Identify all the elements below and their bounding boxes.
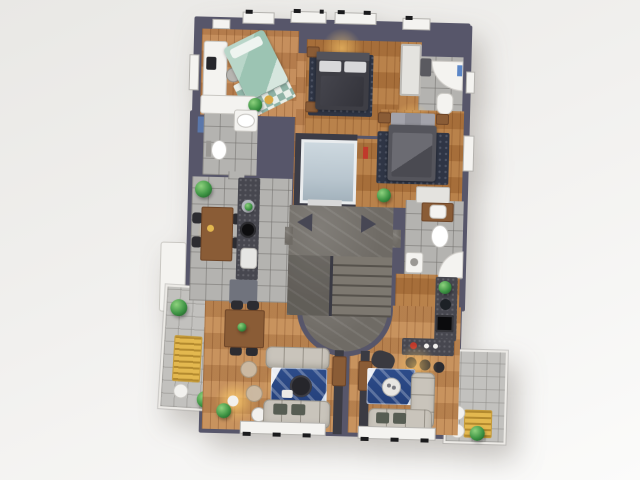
staircase-steps <box>331 256 393 318</box>
plant <box>244 203 252 211</box>
sofa-cushion <box>376 412 389 423</box>
dining-chair <box>246 347 258 356</box>
plate <box>433 344 438 349</box>
door-opening <box>285 227 293 245</box>
window <box>402 18 430 31</box>
sofa-cushion <box>393 413 406 424</box>
nightstand <box>378 112 391 123</box>
wardrobe <box>400 44 422 97</box>
window-frame <box>406 16 428 21</box>
window-frame <box>294 9 324 14</box>
window <box>198 116 204 132</box>
sofa-cushion <box>273 404 287 415</box>
blanket <box>320 76 364 107</box>
window-sill <box>466 71 476 93</box>
plate <box>424 343 429 348</box>
red-wall-art <box>363 147 368 159</box>
bush <box>170 299 188 317</box>
toilet <box>436 93 454 115</box>
pillow <box>344 61 366 73</box>
dining-table <box>200 207 233 262</box>
pillow <box>319 61 341 73</box>
window <box>290 11 326 24</box>
nightstand <box>436 114 449 125</box>
floor-plan-render <box>0 0 640 480</box>
window <box>463 135 475 171</box>
tv-shelf <box>332 356 347 386</box>
dining-chair <box>231 300 243 309</box>
window-frame <box>243 432 323 438</box>
stair-mid-landing <box>287 255 333 316</box>
dining-chair <box>247 301 259 310</box>
sofa-cushion <box>291 404 305 415</box>
blanket <box>391 133 432 178</box>
washing-machine <box>405 252 424 273</box>
cooktop <box>435 315 453 332</box>
dining-chair <box>230 346 242 355</box>
sink <box>429 205 446 219</box>
bush <box>470 426 485 441</box>
door-opening <box>393 230 401 248</box>
direction-triangle-right <box>361 215 376 233</box>
dresser <box>416 186 450 204</box>
building-plan <box>143 9 520 450</box>
tray <box>282 390 293 398</box>
double-bed-dark <box>315 52 370 111</box>
cup <box>387 383 391 387</box>
window <box>242 12 274 25</box>
sofa <box>265 346 330 370</box>
headboard <box>316 52 369 61</box>
direction-triangle-left <box>297 213 312 231</box>
balcony-table <box>172 335 203 383</box>
window <box>212 19 230 29</box>
window-frame <box>338 10 374 15</box>
window-frame <box>360 437 432 443</box>
washer <box>420 58 431 76</box>
kitchen-sink <box>240 248 258 269</box>
window <box>240 421 326 436</box>
window <box>189 54 200 90</box>
blue-towel <box>457 65 462 76</box>
cup <box>392 386 396 390</box>
monitor <box>206 57 216 70</box>
washer-drum <box>410 258 418 266</box>
window <box>334 12 376 25</box>
double-bed-gray <box>387 124 436 181</box>
window <box>358 426 436 441</box>
balcony-chair <box>173 383 189 399</box>
window-frame <box>246 10 272 15</box>
elevator-cab <box>300 139 358 204</box>
